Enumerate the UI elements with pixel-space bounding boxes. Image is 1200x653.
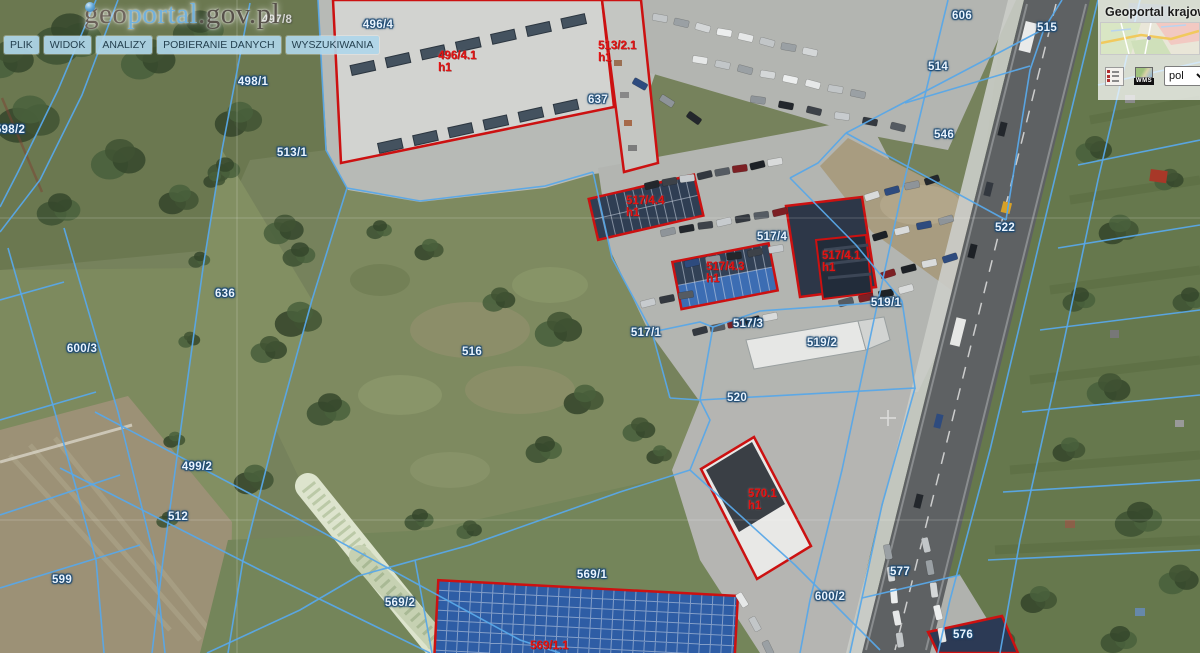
- menu-item-pobieranie-danych[interactable]: POBIERANIE DANYCH: [157, 36, 280, 54]
- overview-minimap[interactable]: [1100, 22, 1200, 55]
- main-menu-bar: PLIKWIDOKANALIZYPOBIERANIE DANYCHWYSZUKI…: [4, 36, 379, 54]
- logo-ball-icon: [85, 2, 95, 12]
- logo-text-suffix: .gov.pl: [198, 0, 280, 30]
- menu-item-wyszukiwania[interactable]: WYSZUKIWANIA: [286, 36, 380, 54]
- wms-map-thumbnail: [1135, 67, 1153, 78]
- menu-item-widok[interactable]: WIDOK: [44, 36, 92, 54]
- aerial-imagery: [0, 0, 1200, 653]
- map-viewport[interactable]: 598/2497/8498/1496/4513/1637606514515546…: [0, 0, 1200, 653]
- legend-icon[interactable]: [1105, 67, 1124, 86]
- layer-panel: Geoportal krajow WMS pol: [1098, 0, 1200, 100]
- menu-item-plik[interactable]: PLIK: [4, 36, 39, 54]
- panel-title: Geoportal krajow: [1098, 0, 1200, 22]
- wms-icon[interactable]: WMS: [1135, 67, 1153, 85]
- panel-toolbar: WMS pol: [1105, 66, 1200, 86]
- menu-item-analizy[interactable]: ANALIZY: [96, 36, 152, 54]
- geoportal-logo[interactable]: geoportal.gov.pl: [84, 0, 280, 31]
- logo-text-portal: portal: [127, 0, 198, 30]
- wms-icon-label: WMS: [1134, 78, 1154, 85]
- language-select[interactable]: pol: [1164, 66, 1200, 86]
